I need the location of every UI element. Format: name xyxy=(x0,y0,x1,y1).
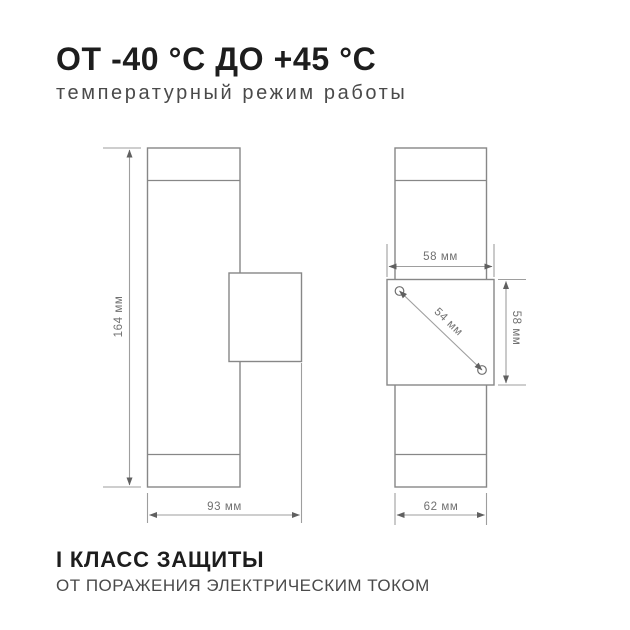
height-dimension: 164 мм xyxy=(103,148,141,487)
plate-width-label: 58 мм xyxy=(423,251,458,263)
wall-mount-box-outline xyxy=(229,273,302,362)
depth-dimension-label: 93 мм xyxy=(207,501,242,513)
body-width-dimension: 62 мм xyxy=(395,493,487,525)
protection-class-title: I КЛАСС ЗАЩИТЫ xyxy=(56,547,430,573)
plate-height-dimension: 58 мм xyxy=(498,280,526,386)
plate-height-label: 58 мм xyxy=(510,311,522,346)
dimension-drawing: 164 мм 93 мм 54 мм 58 мм xyxy=(0,0,630,630)
body-width-label: 62 мм xyxy=(424,501,459,513)
protection-class-subtitle: ОТ ПОРАЖЕНИЯ ЭЛЕКТРИЧЕСКИМ ТОКОМ xyxy=(56,576,430,596)
footer: I КЛАСС ЗАЩИТЫ ОТ ПОРАЖЕНИЯ ЭЛЕКТРИЧЕСКИ… xyxy=(56,547,430,596)
front-view-drawing: 54 мм 58 мм 58 мм 62 мм xyxy=(387,148,526,525)
side-view-drawing: 164 мм 93 мм xyxy=(103,148,302,523)
lamp-body-side-outline xyxy=(148,148,241,487)
height-dimension-label: 164 мм xyxy=(113,296,125,338)
